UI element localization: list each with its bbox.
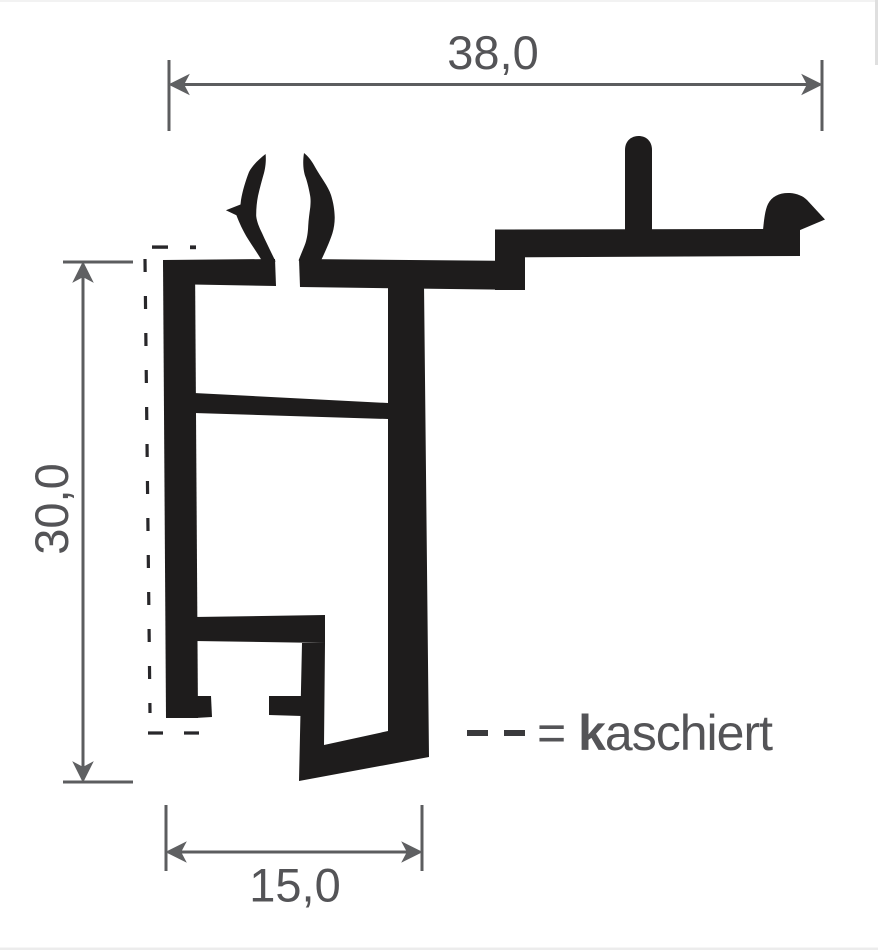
svg-text:15,0: 15,0 [249, 859, 340, 912]
svg-text:38,0: 38,0 [447, 26, 538, 79]
svg-text:= kaschiert: = kaschiert [537, 705, 773, 761]
svg-text:30,0: 30,0 [25, 463, 78, 554]
